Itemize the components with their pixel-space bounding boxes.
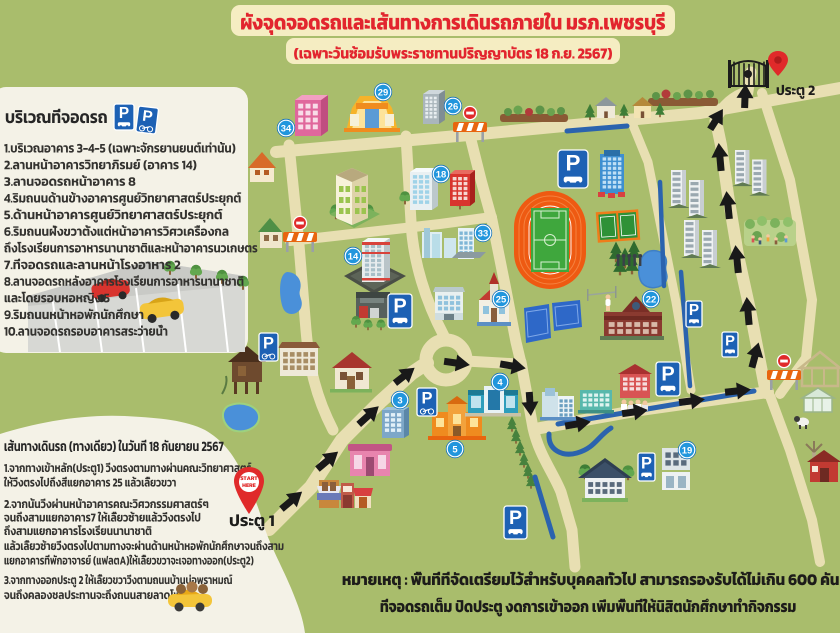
svg-text:P: P <box>119 105 129 122</box>
svg-text:19: 19 <box>682 444 692 455</box>
svg-text:34: 34 <box>281 122 292 133</box>
svg-text:22: 22 <box>646 293 656 304</box>
svg-text:P: P <box>141 108 153 126</box>
svg-text:P: P <box>566 151 581 176</box>
svg-text:5: 5 <box>452 443 457 454</box>
svg-text:P: P <box>422 389 433 407</box>
svg-text:4: 4 <box>497 376 503 387</box>
svg-text:33: 33 <box>478 227 488 238</box>
svg-text:P: P <box>393 296 406 318</box>
svg-text:P: P <box>725 334 735 350</box>
svg-text:P: P <box>689 302 699 319</box>
svg-text:18: 18 <box>436 168 446 179</box>
svg-text:P: P <box>641 454 652 472</box>
svg-text:3: 3 <box>397 394 402 405</box>
svg-text:14: 14 <box>348 250 359 261</box>
svg-text:29: 29 <box>378 86 388 97</box>
svg-text:26: 26 <box>448 100 458 111</box>
svg-text:P: P <box>661 364 674 386</box>
svg-text:P: P <box>263 334 274 352</box>
svg-text:P: P <box>509 507 522 529</box>
svg-text:25: 25 <box>496 293 506 304</box>
